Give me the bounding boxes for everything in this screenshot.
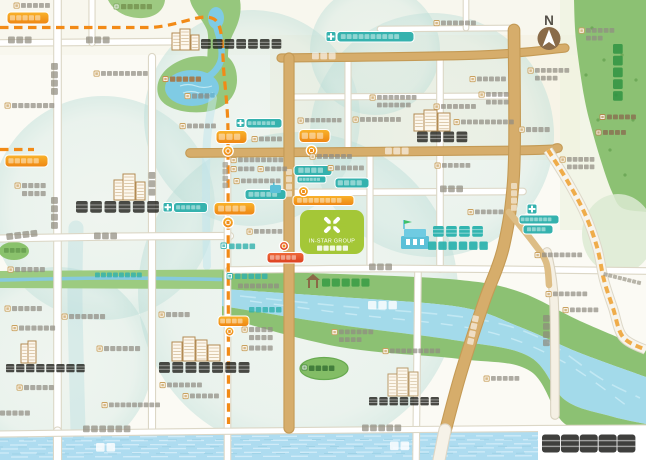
svg-text:N: N: [544, 13, 554, 28]
svg-text:IN-STAR GROUP: IN-STAR GROUP: [309, 239, 355, 245]
